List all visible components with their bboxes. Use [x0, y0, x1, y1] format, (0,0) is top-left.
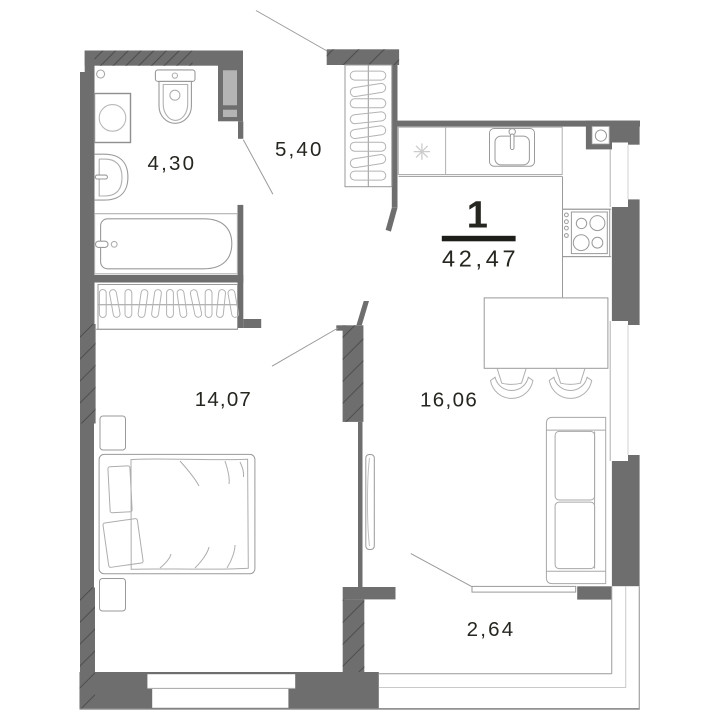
- svg-text:16,06: 16,06: [420, 389, 478, 412]
- svg-text:14,07: 14,07: [195, 388, 252, 411]
- svg-text:5,40: 5,40: [275, 138, 324, 161]
- svg-text:2,64: 2,64: [467, 618, 516, 641]
- svg-text:1: 1: [467, 195, 488, 237]
- svg-text:4,30: 4,30: [148, 152, 197, 175]
- svg-text:42,47: 42,47: [442, 245, 519, 271]
